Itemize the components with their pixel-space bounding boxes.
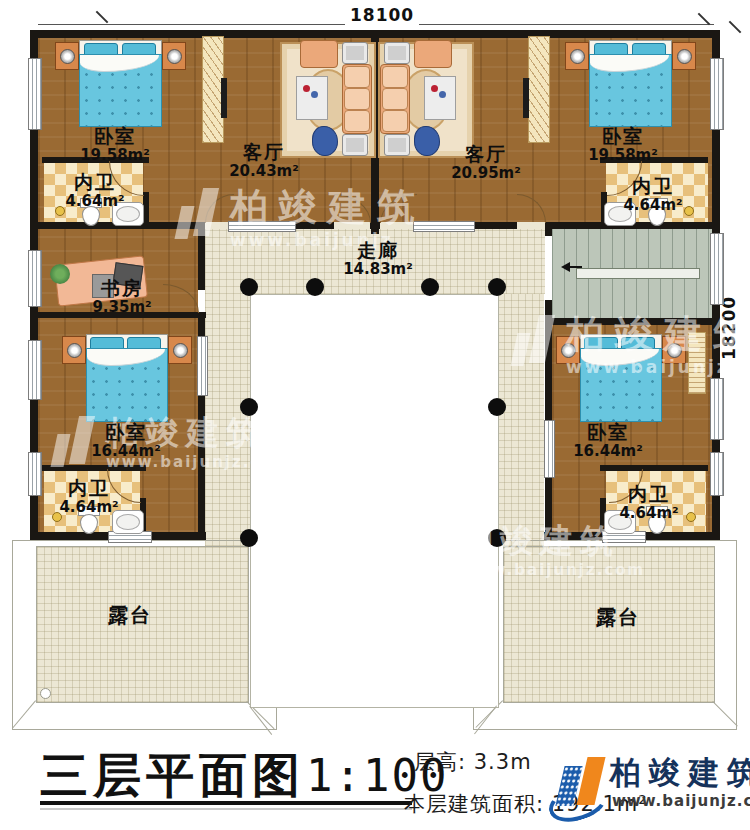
room-label-living-right: 客厅20.95m²	[440, 144, 532, 182]
window	[28, 452, 42, 496]
fixture-dot	[686, 512, 696, 522]
side-table	[342, 42, 368, 64]
column	[306, 278, 324, 296]
room-label-study: 书房9.35m²	[84, 278, 160, 316]
window	[228, 221, 296, 232]
nightstand	[168, 336, 192, 364]
coffee-table	[296, 76, 328, 120]
window	[710, 233, 724, 305]
floor-plan-canvas: 18100 18200	[0, 0, 750, 830]
nightstand	[662, 336, 686, 364]
logo-swoosh-icon	[544, 778, 612, 829]
window	[28, 58, 42, 130]
wall-right-wing-inner-upper	[545, 222, 552, 236]
logo-name: 柏竣建筑	[610, 752, 750, 794]
dimension-label-top: 18100	[345, 5, 419, 25]
room-label-bath-top-right: 内卫4.64m²	[616, 176, 690, 214]
nightstand	[556, 336, 580, 364]
tv-cabinet	[528, 36, 550, 143]
column	[240, 278, 258, 296]
room-label-living-left: 客厅20.43m²	[218, 142, 310, 180]
column	[488, 398, 506, 416]
dimension-tick	[729, 21, 742, 34]
sofa-cushion	[382, 66, 408, 88]
logo-url: www.baijunjz.com	[612, 792, 750, 810]
title-underline-shadow	[40, 808, 412, 810]
floor-height-label: 层高: 3.3m	[414, 748, 532, 776]
window	[413, 221, 475, 232]
corridor-floor-left	[205, 294, 250, 546]
window	[197, 336, 208, 396]
terrace-drain	[40, 688, 51, 699]
window	[544, 420, 555, 478]
window	[28, 250, 42, 307]
staircase-handrail	[576, 268, 700, 279]
sofa-cushion	[382, 110, 408, 132]
room-label-bedroom-mid-right: 卧室16.44m²	[558, 422, 658, 460]
tv	[523, 78, 529, 118]
nightstand	[565, 42, 589, 70]
coffee-table	[424, 76, 456, 120]
sofa-cushion	[344, 88, 370, 110]
room-label-bedroom-top-left: 卧室19.58m²	[70, 126, 160, 164]
wardrobe	[688, 332, 706, 394]
wall-outer-top	[30, 30, 720, 38]
tv	[221, 78, 227, 118]
nightstand	[672, 42, 696, 70]
room-label-bedroom-mid-left: 卧室16.44m²	[76, 422, 176, 460]
room-label-bath-bottom-left: 内卫4.64m²	[52, 478, 126, 516]
window	[28, 340, 42, 400]
page-title: 三层平面图	[40, 744, 305, 808]
room-label-bedroom-top-right: 卧室19.58m²	[578, 126, 668, 164]
door-opening	[334, 222, 370, 229]
side-table	[384, 42, 410, 64]
side-table	[384, 134, 410, 156]
column	[421, 278, 439, 296]
sofa-chaise	[300, 40, 338, 68]
column	[488, 278, 506, 296]
person-figure	[312, 126, 338, 156]
sofa-cushion	[382, 88, 408, 110]
room-label-bath-bottom-right: 内卫4.64m²	[612, 484, 686, 522]
person-figure	[414, 126, 440, 156]
corridor-floor-right	[497, 294, 544, 546]
sofa-chaise	[414, 40, 452, 68]
company-logo: 柏竣建筑 www.baijunjz.com	[548, 750, 750, 824]
title-underline	[40, 801, 412, 805]
column	[488, 529, 506, 547]
nightstand	[162, 42, 186, 70]
courtyard-opening	[250, 294, 499, 708]
column	[240, 529, 258, 547]
window	[710, 58, 724, 130]
nightstand	[62, 336, 86, 364]
window	[710, 378, 724, 440]
room-label-terrace-left: 露台	[98, 604, 162, 626]
wall-stairs-bottom	[545, 318, 712, 325]
wall-left-wing-inner-upper	[198, 222, 205, 290]
window	[710, 452, 724, 496]
door-opening	[380, 222, 416, 229]
nightstand	[55, 42, 79, 70]
staircase-arrow-stem	[568, 266, 582, 268]
room-label-corridor: 走廊14.83m²	[338, 240, 418, 278]
room-label-bath-top-left: 内卫4.64m²	[58, 172, 132, 210]
sofa-cushion	[344, 66, 370, 88]
room-label-terrace-right: 露台	[586, 606, 650, 628]
side-table	[342, 134, 368, 156]
door-opening	[517, 222, 545, 229]
column	[240, 398, 258, 416]
dimension-tick	[96, 11, 109, 24]
sofa-cushion	[344, 110, 370, 132]
plant	[50, 264, 70, 284]
